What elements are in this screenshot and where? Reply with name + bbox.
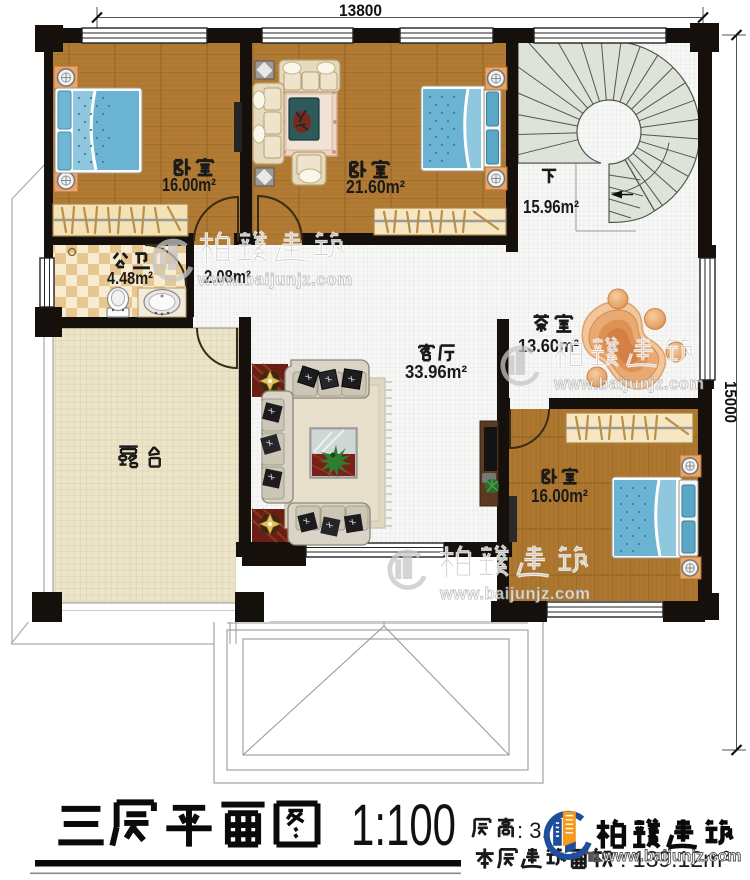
svg-text:16.00m²: 16.00m² xyxy=(531,486,588,506)
svg-text:4.48m²: 4.48m² xyxy=(107,268,153,288)
svg-text:33.96m²: 33.96m² xyxy=(405,362,467,382)
svg-text:www.baijunjz.com: www.baijunjz.com xyxy=(439,585,590,603)
svg-text:: 3.: : 3. xyxy=(517,818,548,843)
svg-text:13800: 13800 xyxy=(339,2,382,20)
svg-text:16.00m²: 16.00m² xyxy=(162,175,216,195)
svg-text:℡www.baijunjz.com: ℡www.baijunjz.com xyxy=(585,848,742,865)
svg-text:15.96m²: 15.96m² xyxy=(523,197,579,217)
svg-text:www.baijunjz.com: www.baijunjz.com xyxy=(197,270,353,289)
svg-text:15000: 15000 xyxy=(721,381,739,423)
svg-text:www.baijunjz.com: www.baijunjz.com xyxy=(553,375,704,393)
svg-text:21.60m²: 21.60m² xyxy=(346,177,405,197)
svg-text:1:100: 1:100 xyxy=(351,793,456,858)
